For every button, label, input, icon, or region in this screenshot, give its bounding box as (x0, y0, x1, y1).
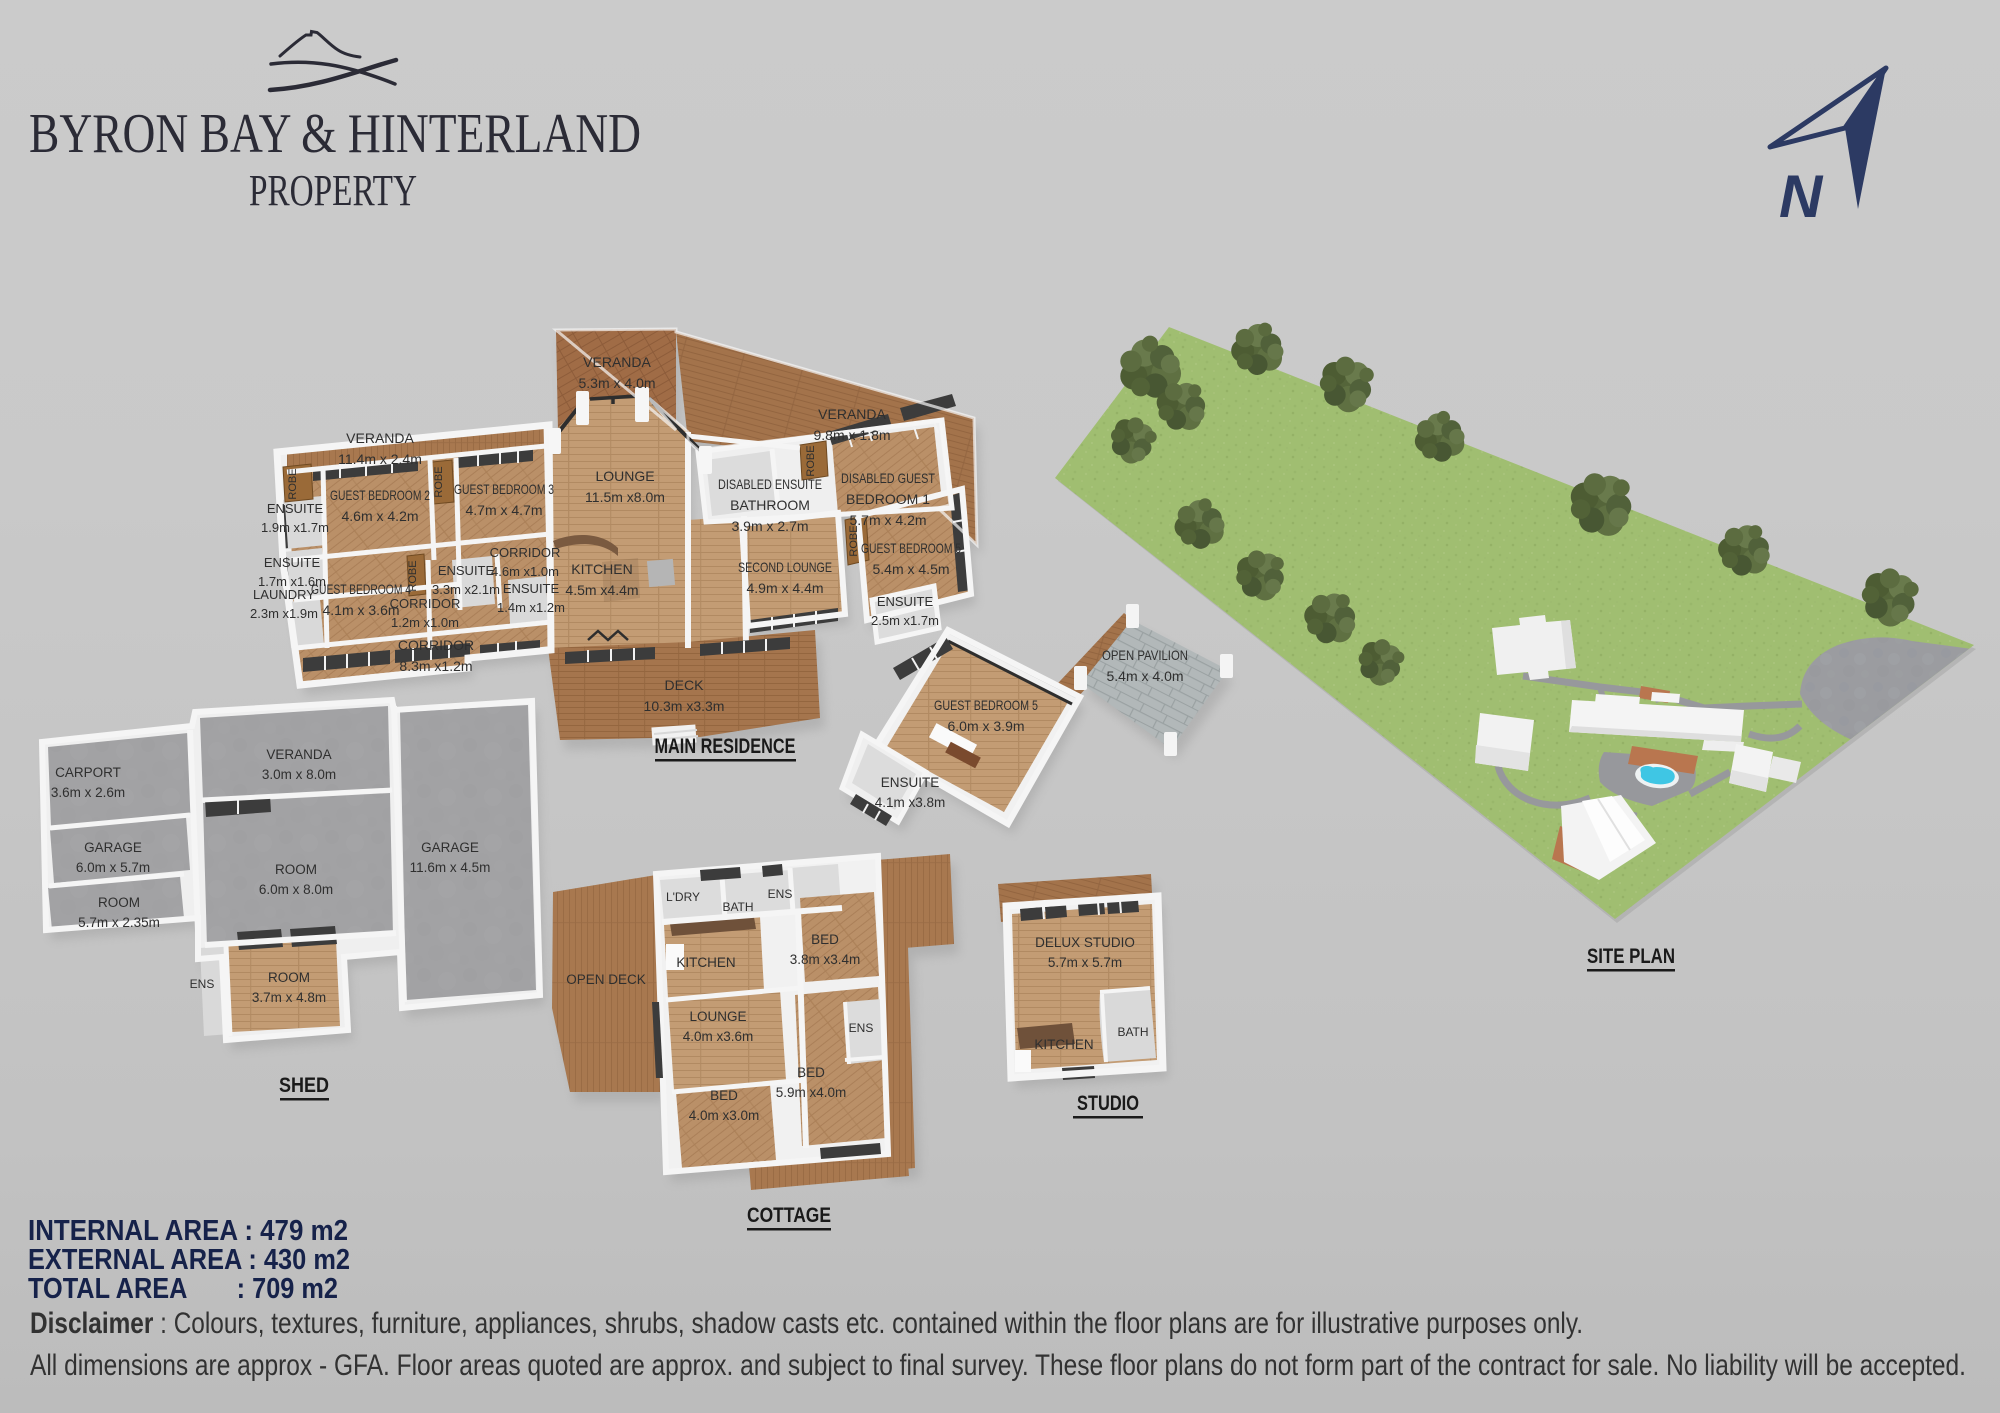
svg-text:LOUNGE: LOUNGE (595, 468, 654, 484)
svg-text:ROBE: ROBE (407, 560, 419, 591)
svg-text:5.7m x 5.7m: 5.7m x 5.7m (1048, 955, 1122, 970)
svg-text:GUEST BEDROOM 3: GUEST BEDROOM 3 (454, 481, 554, 497)
svg-text:GUEST BEDROOM 4: GUEST BEDROOM 4 (311, 581, 411, 597)
svg-text:ENSUITE: ENSUITE (503, 581, 560, 596)
svg-text:CORRIDOR: CORRIDOR (398, 637, 474, 653)
svg-text:COTTAGE: COTTAGE (747, 1204, 831, 1227)
svg-text:ENSUITE: ENSUITE (438, 563, 495, 578)
svg-text:KITCHEN: KITCHEN (571, 561, 632, 577)
svg-text:ENSUITE: ENSUITE (267, 501, 324, 516)
svg-text:OPEN PAVILION: OPEN PAVILION (1102, 647, 1188, 663)
svg-text:3.9m x 2.7m: 3.9m x 2.7m (731, 518, 808, 534)
svg-text:L'DRY: L'DRY (666, 890, 700, 904)
svg-text:All dimensions are approx - GF: All dimensions are approx - GFA. Floor a… (30, 1349, 1966, 1382)
svg-text:ROOM: ROOM (268, 970, 310, 985)
svg-text:3.8m x3.4m: 3.8m x3.4m (790, 952, 861, 967)
svg-text:1.4m x1.2m: 1.4m x1.2m (497, 600, 565, 615)
svg-text:CORRIDOR: CORRIDOR (490, 545, 561, 560)
svg-text:KITCHEN: KITCHEN (676, 955, 735, 970)
svg-text:5.4m x 4.0m: 5.4m x 4.0m (1106, 668, 1183, 684)
svg-text:ENSUITE: ENSUITE (877, 594, 934, 609)
svg-text:GUEST BEDROOM 5: GUEST BEDROOM 5 (861, 540, 961, 556)
svg-text:4.6m x1.0m: 4.6m x1.0m (491, 564, 559, 579)
svg-text:VERANDA: VERANDA (583, 354, 651, 370)
svg-text:CORRIDOR: CORRIDOR (390, 596, 461, 611)
svg-text:BATH: BATH (1117, 1025, 1148, 1039)
svg-text:4.5m x4.4m: 4.5m x4.4m (565, 582, 638, 598)
svg-text:EXTERNAL AREA : 430 m2: EXTERNAL AREA : 430 m2 (28, 1244, 350, 1276)
svg-text:DISABLED ENSUITE: DISABLED ENSUITE (718, 476, 822, 492)
svg-text:DELUX STUDIO: DELUX STUDIO (1035, 935, 1135, 950)
svg-text:BED: BED (797, 1065, 825, 1080)
svg-text:5.4m x 4.5m: 5.4m x 4.5m (872, 561, 949, 577)
svg-text:ENS: ENS (849, 1021, 874, 1035)
svg-text:VERANDA: VERANDA (818, 406, 886, 422)
svg-text:TOTAL AREA : 709 m2: TOTAL AREA : 709 m2 (28, 1273, 338, 1305)
svg-text:3.7m x 4.8m: 3.7m x 4.8m (252, 990, 326, 1005)
svg-text:4.9m x 4.4m: 4.9m x 4.4m (746, 580, 823, 596)
svg-text:4.1m x 3.6m: 4.1m x 3.6m (322, 602, 399, 618)
svg-text:4.7m x 4.7m: 4.7m x 4.7m (465, 502, 542, 518)
svg-text:4.6m x 4.2m: 4.6m x 4.2m (341, 508, 418, 524)
svg-text:DECK: DECK (665, 677, 705, 693)
svg-text:5.3m x 4.0m: 5.3m x 4.0m (578, 375, 655, 391)
svg-text:5.7m x 2.35m: 5.7m x 2.35m (78, 915, 160, 930)
svg-text:8.3m x1.2m: 8.3m x1.2m (399, 658, 472, 674)
svg-text:GARAGE: GARAGE (421, 840, 479, 855)
svg-text:LAUNDRY: LAUNDRY (253, 587, 315, 602)
svg-text:ENSUITE: ENSUITE (881, 775, 940, 790)
svg-text:11.5m x8.0m: 11.5m x8.0m (585, 489, 665, 505)
svg-text:ROBE: ROBE (848, 525, 860, 556)
svg-text:6.0m x 5.7m: 6.0m x 5.7m (76, 860, 150, 875)
svg-text:GUEST BEDROOM 2: GUEST BEDROOM 2 (330, 487, 430, 503)
svg-text:4.0m x3.0m: 4.0m x3.0m (689, 1108, 760, 1123)
svg-text:BEDROOM 1: BEDROOM 1 (846, 491, 930, 507)
svg-text:3.3m x2.1m: 3.3m x2.1m (432, 582, 500, 597)
svg-text:VERANDA: VERANDA (266, 747, 331, 762)
svg-text:1.2m x1.0m: 1.2m x1.0m (391, 615, 459, 630)
svg-text:5.9m x4.0m: 5.9m x4.0m (776, 1085, 847, 1100)
svg-text:KITCHEN: KITCHEN (1034, 1037, 1093, 1052)
svg-text:STUDIO: STUDIO (1077, 1092, 1139, 1115)
svg-text:6.0m x 8.0m: 6.0m x 8.0m (259, 882, 333, 897)
svg-text:GARAGE: GARAGE (84, 840, 142, 855)
svg-text:INTERNAL AREA : 479 m2: INTERNAL AREA : 479 m2 (28, 1215, 348, 1247)
svg-text:6.0m x 3.9m: 6.0m x 3.9m (947, 718, 1024, 734)
svg-text:ROBE: ROBE (287, 468, 299, 499)
svg-text:Disclaimer : Colours, textures: Disclaimer : Colours, textures, furnitur… (30, 1307, 1583, 1340)
svg-text:ENS: ENS (768, 887, 793, 901)
svg-text:BYRON BAY & HINTERLAND: BYRON BAY & HINTERLAND (29, 103, 641, 165)
svg-text:ROBE: ROBE (433, 466, 445, 497)
svg-text:ROOM: ROOM (275, 862, 317, 877)
svg-text:10.3m x3.3m: 10.3m x3.3m (644, 698, 725, 714)
svg-text:N: N (1779, 163, 1824, 230)
svg-text:4.0m x3.6m: 4.0m x3.6m (683, 1029, 754, 1044)
svg-text:DISABLED GUEST: DISABLED GUEST (841, 470, 935, 486)
svg-text:LOUNGE: LOUNGE (689, 1009, 746, 1024)
svg-text:BED: BED (710, 1088, 738, 1103)
svg-text:CARPORT: CARPORT (55, 765, 121, 780)
svg-text:ROOM: ROOM (98, 895, 140, 910)
svg-text:SECOND LOUNGE: SECOND LOUNGE (738, 559, 832, 575)
svg-text:11.4m x 2.4m: 11.4m x 2.4m (338, 451, 422, 467)
svg-text:5.7m x 4.2m: 5.7m x 4.2m (849, 512, 926, 528)
svg-text:4.1m x3.8m: 4.1m x3.8m (875, 795, 946, 810)
svg-text:VERANDA: VERANDA (346, 430, 414, 446)
svg-text:GUEST BEDROOM 5: GUEST BEDROOM 5 (934, 697, 1038, 713)
svg-text:OPEN DECK: OPEN DECK (566, 972, 646, 987)
svg-text:BATH: BATH (722, 900, 753, 914)
svg-text:BATHROOM: BATHROOM (730, 497, 810, 513)
svg-text:SHED: SHED (279, 1074, 329, 1097)
svg-text:3.6m x 2.6m: 3.6m x 2.6m (51, 785, 125, 800)
svg-text:PROPERTY: PROPERTY (249, 166, 417, 215)
svg-text:BED: BED (811, 932, 839, 947)
svg-text:ENS: ENS (190, 977, 215, 991)
svg-text:MAIN RESIDENCE: MAIN RESIDENCE (655, 735, 796, 758)
svg-text:3.0m x 8.0m: 3.0m x 8.0m (262, 767, 336, 782)
svg-text:9.8m x 1.8m: 9.8m x 1.8m (813, 427, 890, 443)
svg-text:1.9m x1.7m: 1.9m x1.7m (261, 520, 329, 535)
svg-text:2.5m x1.7m: 2.5m x1.7m (871, 613, 939, 628)
svg-text:SITE PLAN: SITE PLAN (1587, 945, 1675, 968)
svg-text:2.3m x1.9m: 2.3m x1.9m (250, 606, 318, 621)
svg-text:11.6m x 4.5m: 11.6m x 4.5m (410, 860, 491, 875)
svg-text:ENSUITE: ENSUITE (264, 555, 321, 570)
svg-text:ROBE: ROBE (805, 445, 817, 476)
